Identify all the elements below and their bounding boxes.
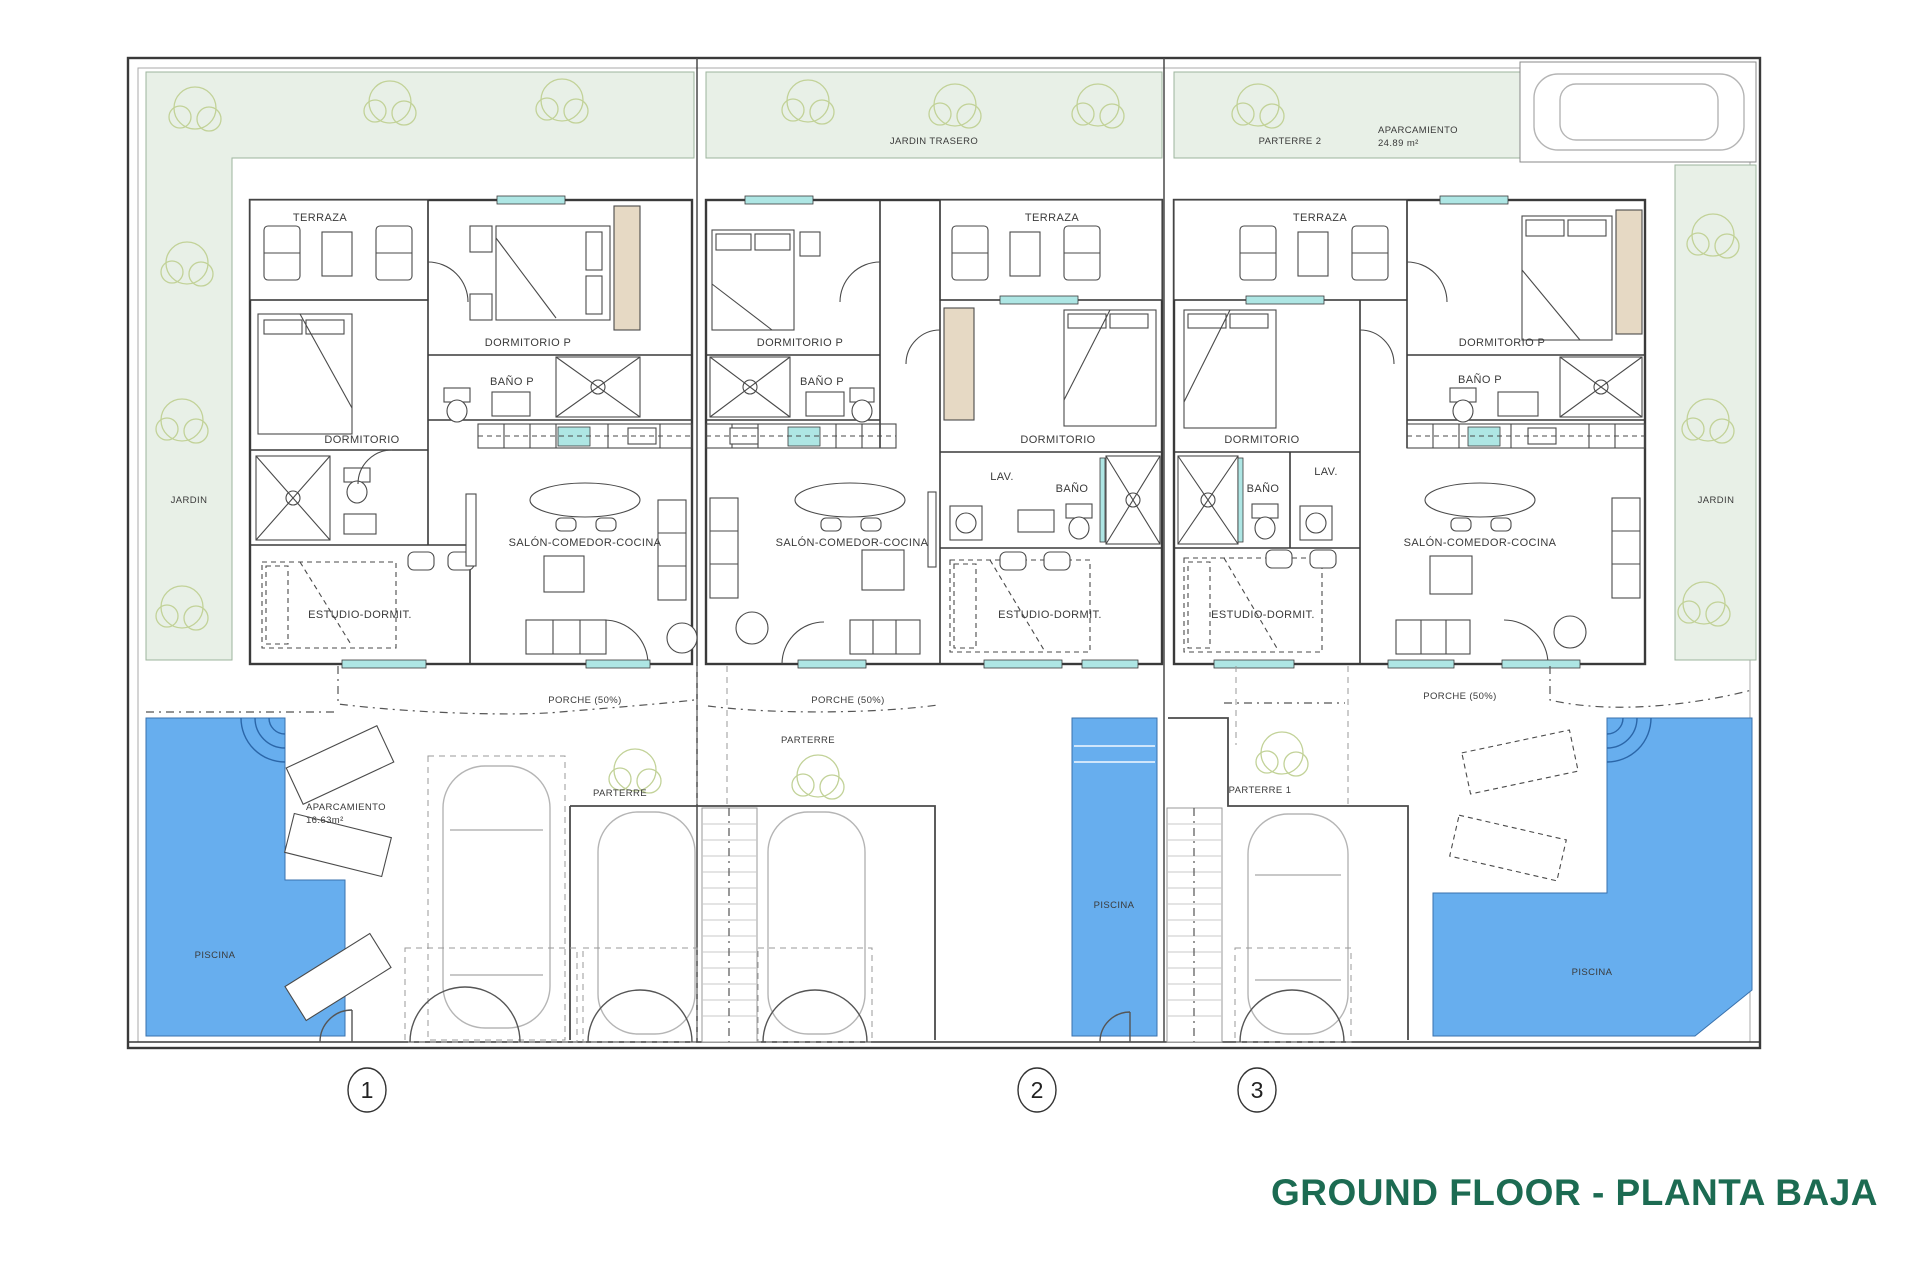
toilet-icon (1066, 504, 1092, 539)
glass-partition-icon (1238, 458, 1243, 542)
room-label: BAÑO (1056, 482, 1089, 495)
washer-icon (950, 506, 982, 540)
room-label: SALÓN-COMEDOR-COCINA (776, 536, 929, 549)
jardin-left-label: JARDIN (171, 495, 208, 506)
bed-double-icon (712, 230, 820, 330)
room-label: BAÑO P (800, 375, 844, 388)
porche3-label: PORCHE (50%) (1423, 691, 1496, 702)
chair-icon (1044, 552, 1070, 570)
bed-double-icon (1522, 216, 1612, 340)
sofa-icon (526, 620, 606, 654)
wardrobe-icon (614, 206, 640, 330)
chair-icon (1310, 550, 1336, 568)
coffee-table-icon (862, 550, 904, 590)
chair-icon (408, 552, 434, 570)
room-label: TERRAZA (293, 212, 347, 224)
unit1-number: 1 (361, 1077, 374, 1103)
window-icon (798, 660, 866, 668)
shower-icon (1560, 357, 1642, 417)
window-icon (586, 660, 650, 668)
porche2-label: PORCHE (50%) (811, 695, 884, 706)
pool-unit2: PISCINA (1072, 718, 1157, 1036)
unit3-number: 3 (1251, 1077, 1264, 1103)
window-icon (1502, 660, 1580, 668)
terrace-furniture-icon (1240, 226, 1388, 280)
sink-icon (344, 514, 376, 534)
aparcamiento-top-label: APARCAMIENTO (1378, 125, 1458, 136)
room-label: DORMITORIO (1020, 434, 1095, 446)
unit2-number: 2 (1031, 1077, 1044, 1103)
room-label: DORMITORIO P (1459, 337, 1546, 349)
sun-loungers-unit3 (1450, 730, 1578, 881)
jardin-right-label: JARDIN (1698, 495, 1735, 506)
porche1-label: PORCHE (50%) (548, 695, 621, 706)
unit-1: TERRAZA DORMITORIO P BAÑO P DORMITORIO S… (250, 196, 697, 668)
floor-plan-page: JARDIN JARDIN TRASERO PARTERRE 2 APARCAM… (0, 0, 1920, 1280)
kitchen-counter (1407, 424, 1645, 448)
piscina2-label: PISCINA (1094, 900, 1135, 911)
bed-double-icon (258, 314, 352, 434)
shower-icon (1178, 456, 1238, 544)
window-icon (984, 660, 1062, 668)
outdoor-labels: PORCHE (50%) PORCHE (50%) PORCHE (50%) P… (548, 691, 1496, 799)
shower-icon (710, 357, 790, 417)
window-icon (1440, 196, 1508, 204)
piscina3-label: PISCINA (1572, 967, 1613, 978)
window-icon (1000, 296, 1078, 304)
window-icon (1246, 296, 1324, 304)
sofa-bed-icon (1184, 558, 1322, 652)
diagonal-parking-unit1: APARCAMIENTO 16.63m² (285, 726, 394, 1021)
piscina1-label: PISCINA (195, 950, 236, 961)
coffee-table-icon (544, 556, 584, 592)
top-parking-bay (1520, 62, 1756, 162)
chair-icon (1000, 552, 1026, 570)
aparcamiento1-label: APARCAMIENTO (306, 802, 386, 813)
driveway-unit3 (1248, 814, 1348, 1034)
glass-partition-icon (1100, 458, 1105, 542)
window-icon (1388, 660, 1454, 668)
bed-double-icon (1184, 310, 1276, 428)
toilet-icon (1450, 388, 1476, 422)
toilet-icon (850, 388, 874, 422)
car-icon (443, 766, 550, 1028)
unit-number-markers: 1 2 3 (348, 1068, 1276, 1112)
parterre-unit2-label: PARTERRE (781, 735, 835, 746)
page-title: GROUND FLOOR - PLANTA BAJA (1271, 1172, 1878, 1214)
washer-icon (1300, 506, 1332, 540)
toilet-icon (344, 468, 370, 503)
car-icon (1248, 814, 1348, 1034)
side-table-icon (1554, 616, 1586, 648)
tv-unit-icon (928, 492, 936, 567)
room-label: ESTUDIO-DORMIT. (998, 609, 1102, 621)
door-swing-icon (1360, 262, 1548, 664)
room-label: SALÓN-COMEDOR-COCINA (1404, 536, 1557, 549)
shower-icon (1106, 456, 1160, 544)
room-label: BAÑO P (1458, 373, 1502, 386)
room-label: BAÑO (1247, 482, 1280, 495)
island-table-icon (795, 483, 905, 531)
room-label: ESTUDIO-DORMIT. (1211, 609, 1315, 621)
room-label: DORMITORIO (1224, 434, 1299, 446)
window-icon (497, 196, 565, 204)
sink-icon (1018, 510, 1054, 532)
coffee-table-icon (1430, 556, 1472, 594)
sink-icon (806, 392, 844, 416)
shower-icon (256, 456, 330, 540)
door-swing-icon (782, 262, 940, 664)
room-label: BAÑO P (490, 375, 534, 388)
room-label: DORMITORIO P (757, 337, 844, 349)
tree-icon (1256, 732, 1308, 776)
island-table-icon (1425, 483, 1535, 531)
room-label: ESTUDIO-DORMIT. (308, 609, 412, 621)
terrace-furniture-icon (952, 226, 1100, 280)
sofa-bed-icon (262, 562, 396, 648)
toilet-icon (444, 388, 470, 422)
island-table-icon (530, 483, 640, 531)
wardrobe-icon (944, 308, 974, 420)
tree-icon (792, 755, 844, 799)
car-icon (598, 812, 695, 1034)
parterre2-label: PARTERRE 2 (1259, 136, 1322, 147)
unit-2: TERRAZA DORMITORIO P BAÑO P DORMITORIO L… (706, 196, 1162, 668)
side-table-icon (667, 623, 697, 653)
aparcamiento1-area: 16.63m² (306, 815, 344, 826)
toilet-icon (1252, 504, 1278, 539)
sink-icon (492, 392, 530, 416)
window-icon (342, 660, 426, 668)
kitchen-counter (706, 424, 896, 448)
sofa-icon (710, 498, 738, 598)
door-swing-icon (358, 262, 648, 664)
window-icon (1214, 660, 1294, 668)
kitchen-counter (478, 424, 692, 448)
chair-icon (1266, 550, 1292, 568)
stairs-unit2 (702, 808, 757, 1042)
room-label: DORMITORIO P (485, 337, 572, 349)
sofa-icon (1396, 620, 1470, 654)
sofa-bed-icon (950, 560, 1090, 652)
parterre-unit3-label: PARTERRE 1 (1229, 785, 1292, 796)
sofa-icon (1612, 498, 1640, 598)
unit-3: TERRAZA DORMITORIO P BAÑO P DORMITORIO L… (1174, 196, 1645, 668)
bed-double-icon (1064, 310, 1156, 426)
sofa-icon (850, 620, 920, 654)
aparcamiento-top-area: 24.89 m² (1378, 138, 1419, 149)
parterre-unit1-label: PARTERRE (593, 788, 647, 799)
pool-unit3: PISCINA (1433, 718, 1752, 1036)
room-label: LAV. (1314, 466, 1338, 478)
terrace-furniture-icon (264, 226, 412, 280)
window-icon (1082, 660, 1138, 668)
tv-unit-icon (466, 494, 476, 566)
room-label: TERRAZA (1025, 212, 1079, 224)
tree-icon (609, 749, 661, 793)
stairs-unit3 (1167, 808, 1222, 1042)
bed-double-icon (470, 226, 610, 320)
wardrobe-icon (1616, 210, 1642, 334)
sofa-icon (658, 500, 686, 600)
shower-icon (556, 357, 640, 417)
room-label: LAV. (990, 471, 1014, 483)
floor-plan-drawing: JARDIN JARDIN TRASERO PARTERRE 2 APARCAM… (0, 0, 1920, 1280)
room-label: SALÓN-COMEDOR-COCINA (509, 536, 662, 549)
side-table-icon (736, 612, 768, 644)
sink-icon (1498, 392, 1538, 416)
jardin-trasero-label: JARDIN TRASERO (890, 136, 978, 147)
car-gate-icon (410, 987, 520, 1042)
room-label: TERRAZA (1293, 212, 1347, 224)
garden-parterre2-strip: PARTERRE 2 APARCAMIENTO 24.89 m² (1174, 72, 1520, 158)
window-icon (745, 196, 813, 204)
room-label: DORMITORIO (324, 434, 399, 446)
